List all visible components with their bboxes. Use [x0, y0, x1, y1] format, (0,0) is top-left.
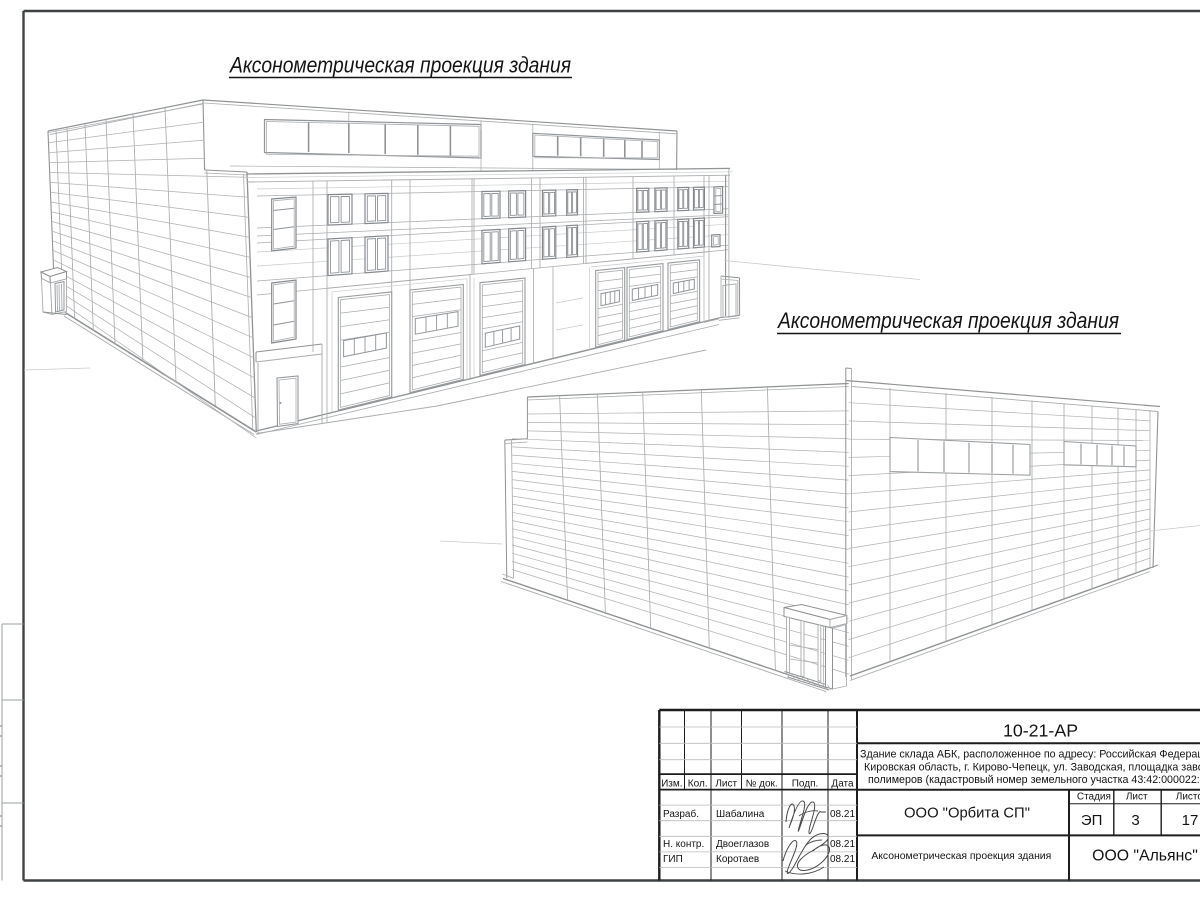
svg-text:Подп.: Подп. — [792, 778, 819, 789]
svg-text:Здание склада АБК, расположенн: Здание склада АБК, расположенное по адре… — [860, 749, 1200, 761]
svg-text:17: 17 — [1182, 812, 1199, 829]
svg-text:Кировская область, г. Кирово-Ч: Кировская область, г. Кирово-Чепецк, ул.… — [864, 762, 1200, 774]
svg-text:ГИП: ГИП — [663, 854, 683, 865]
svg-text:Двоеглазов: Двоеглазов — [716, 839, 769, 850]
svg-text:Шабалина: Шабалина — [716, 808, 765, 820]
svg-text:08.21: 08.21 — [830, 839, 855, 850]
svg-text:ЭП: ЭП — [1081, 812, 1103, 829]
svg-text:08.21: 08.21 — [830, 854, 855, 865]
svg-text:Аксонометрическая проекция зда: Аксонометрическая проекция здания — [776, 308, 1119, 333]
svg-text:полимеров (кадастровый номер з: полимеров (кадастровый номер земельного … — [868, 774, 1200, 786]
svg-text:Разраб.: Разраб. — [663, 808, 699, 820]
svg-text:Лист: Лист — [1126, 791, 1148, 802]
svg-text:Лист: Лист — [715, 778, 737, 789]
svg-text:ООО "Альянс": ООО "Альянс" — [1092, 847, 1198, 864]
svg-text:Стадия: Стадия — [1077, 791, 1111, 802]
svg-text:08.21: 08.21 — [830, 809, 855, 820]
svg-text:ООО "Орбита СП": ООО "Орбита СП" — [904, 805, 1030, 821]
svg-text:Аксонометрическая проекция зда: Аксонометрическая проекция здания — [228, 53, 571, 78]
svg-text:Изм.: Изм. — [661, 778, 682, 789]
svg-text:Дата: Дата — [831, 778, 854, 789]
svg-text:Аксонометрическая проекция зда: Аксонометрическая проекция здания — [871, 851, 1051, 862]
svg-text:Коротаев: Коротаев — [716, 854, 759, 865]
svg-text:Кол.: Кол. — [688, 778, 708, 789]
svg-text:3: 3 — [1131, 812, 1139, 829]
svg-text:Листов: Листов — [1176, 791, 1200, 802]
svg-text:Н. контр.: Н. контр. — [663, 839, 704, 850]
svg-text:10-21-АР: 10-21-АР — [1003, 721, 1078, 741]
svg-text:№ док.: № док. — [746, 778, 778, 789]
